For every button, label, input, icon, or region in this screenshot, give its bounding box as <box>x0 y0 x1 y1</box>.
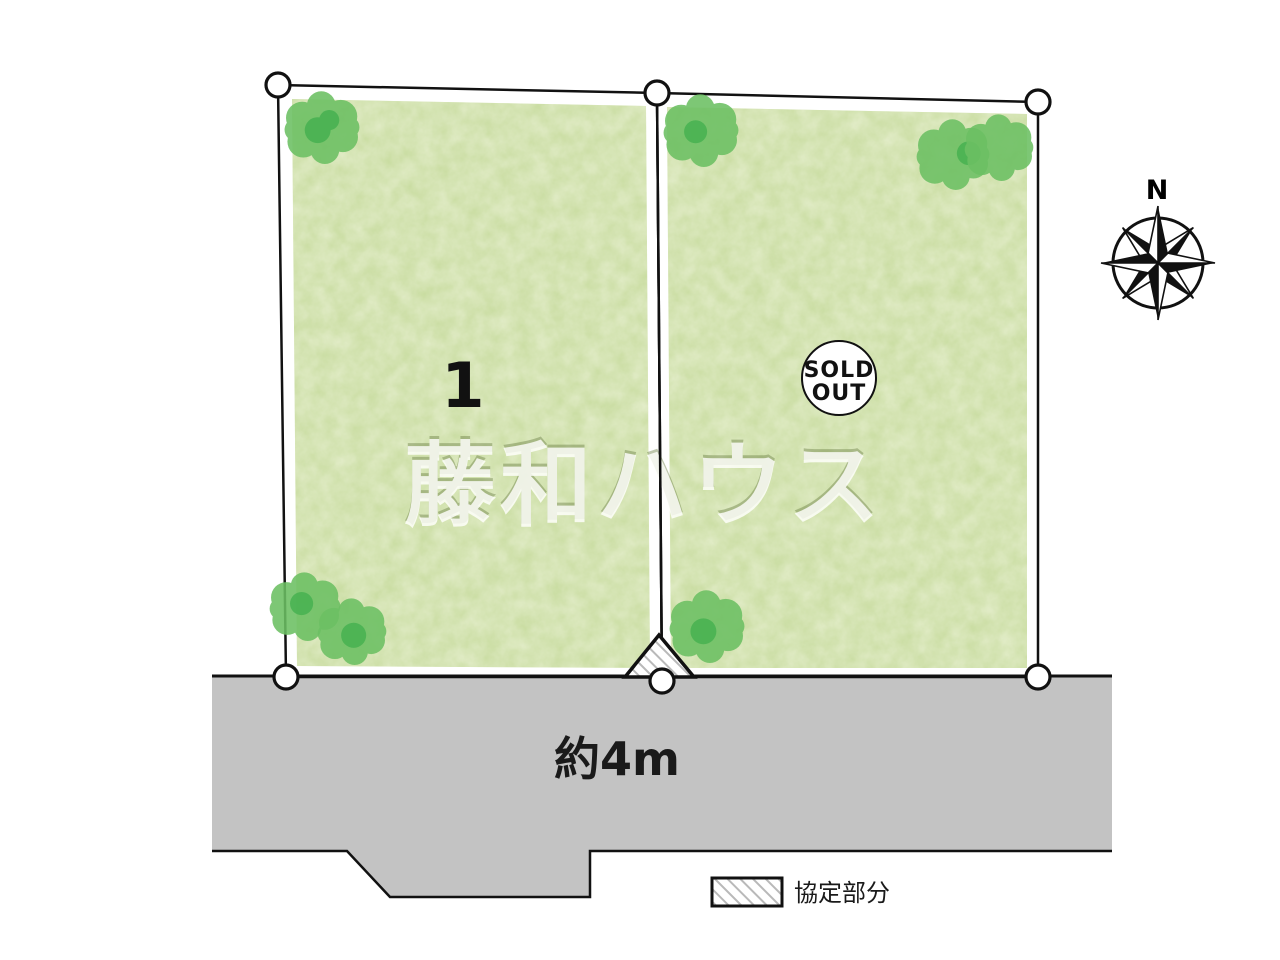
road-bottom-edge <box>212 851 1112 897</box>
plot-layout-canvas: 藤和ハウス 藤和ハウス <box>0 0 1280 960</box>
boundary-marker <box>274 665 298 689</box>
compass-north-label: N <box>1146 175 1169 206</box>
road-width-label: 約4m <box>554 732 680 786</box>
boundary-marker <box>1026 90 1050 114</box>
boundary-marker <box>645 81 669 105</box>
sold-out-badge: SOLD OUT <box>802 341 876 415</box>
boundary-marker <box>266 73 290 97</box>
boundary-marker <box>650 669 674 693</box>
compass-rose: N <box>1101 175 1215 320</box>
legend-label: 協定部分 <box>794 879 890 907</box>
watermark-text: 藤和ハウス <box>404 433 884 540</box>
legend-swatch <box>712 878 782 906</box>
plot-1-number: 1 <box>441 349 484 422</box>
boundary-marker <box>1026 665 1050 689</box>
plot-layout-diagram: 藤和ハウス 藤和ハウス <box>0 0 1280 960</box>
legend: 協定部分 <box>712 878 890 907</box>
sold-out-text-line-2: OUT <box>812 381 867 406</box>
compass-points <box>1101 206 1215 320</box>
road-area <box>212 676 1112 897</box>
sold-out-text-line-1: SOLD <box>804 358 875 383</box>
